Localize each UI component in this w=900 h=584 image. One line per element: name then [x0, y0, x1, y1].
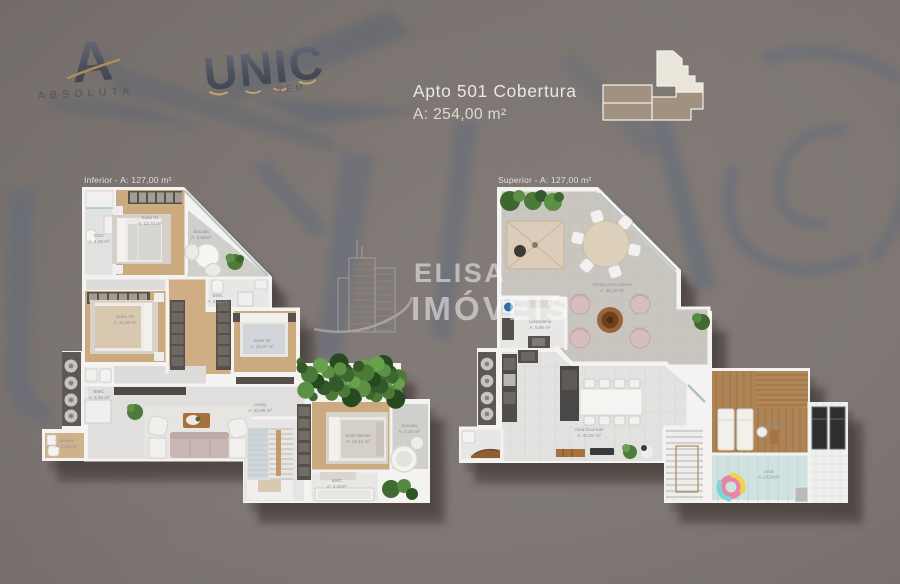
svg-text:IMÓVEIS: IMÓVEIS: [411, 290, 571, 327]
svg-text:A: 15,07 m²: A: 15,07 m²: [250, 344, 274, 349]
svg-text:Suíte 03: Suíte 03: [116, 314, 134, 319]
svg-text:A: 11,94 m²: A: 11,94 m²: [113, 320, 137, 325]
svg-text:A: 254,00 m²: A: 254,00 m²: [413, 106, 507, 123]
svg-text:A: 58,38 m²: A: 58,38 m²: [600, 288, 624, 293]
svg-text:Suíte 01: Suíte 01: [141, 215, 159, 220]
svg-text:A: 12,74 m²: A: 12,74 m²: [138, 221, 162, 226]
svg-text:Superior - A: 127,00 m²: Superior - A: 127,00 m²: [498, 175, 591, 185]
svg-text:SWC: SWC: [94, 233, 105, 238]
svg-text:ELISA: ELISA: [414, 258, 507, 288]
svg-text:Sacada: Sacada: [193, 229, 209, 234]
svg-text:A: 10,56m²: A: 10,56m²: [764, 424, 785, 429]
svg-text:Suíte Master: Suíte Master: [345, 433, 372, 438]
svg-text:A: 14,54 m²: A: 14,54 m²: [758, 474, 780, 479]
svg-text:A: 32,81 m²: A: 32,81 m²: [577, 433, 601, 438]
svg-text:BWC: BWC: [94, 389, 105, 394]
svg-text:A: 4,24m²: A: 4,24m²: [327, 484, 347, 489]
svg-text:A: 4,26 m²: A: 4,26 m²: [398, 429, 420, 434]
svg-text:Deck: Deck: [769, 419, 779, 424]
svg-text:Inferior - A: 127,00 m²: Inferior - A: 127,00 m²: [84, 175, 172, 185]
svg-text:A: 4,62 m²: A: 4,62 m²: [207, 299, 229, 304]
svg-text:Suíte 02: Suíte 02: [253, 338, 271, 343]
svg-text:Área Gourmet: Área Gourmet: [575, 426, 605, 432]
svg-text:A: 3,69m²: A: 3,69m²: [191, 235, 211, 240]
svg-text:Terraço Descoberto: Terraço Descoberto: [592, 282, 633, 287]
svg-text:Living: Living: [254, 402, 266, 407]
svg-text:A: 3,38 m²: A: 3,38 m²: [88, 395, 110, 400]
svg-text:A: 42,99 m²: A: 42,99 m²: [248, 408, 272, 413]
svg-text:BWC: BWC: [332, 478, 343, 483]
svg-text:Deck: Deck: [764, 469, 774, 474]
svg-text:Sacada: Sacada: [401, 423, 417, 428]
svg-text:A: 4,29 m²: A: 4,29 m²: [88, 239, 110, 244]
svg-text:Lavabo: Lavabo: [58, 438, 74, 443]
svg-text:A: 13,44 m²: A: 13,44 m²: [346, 439, 370, 444]
svg-text:Apto 501 Cobertura: Apto 501 Cobertura: [413, 81, 577, 101]
svg-text:A: 2,02 m²: A: 2,02 m²: [55, 444, 77, 449]
svg-text:BWC: BWC: [213, 293, 224, 298]
